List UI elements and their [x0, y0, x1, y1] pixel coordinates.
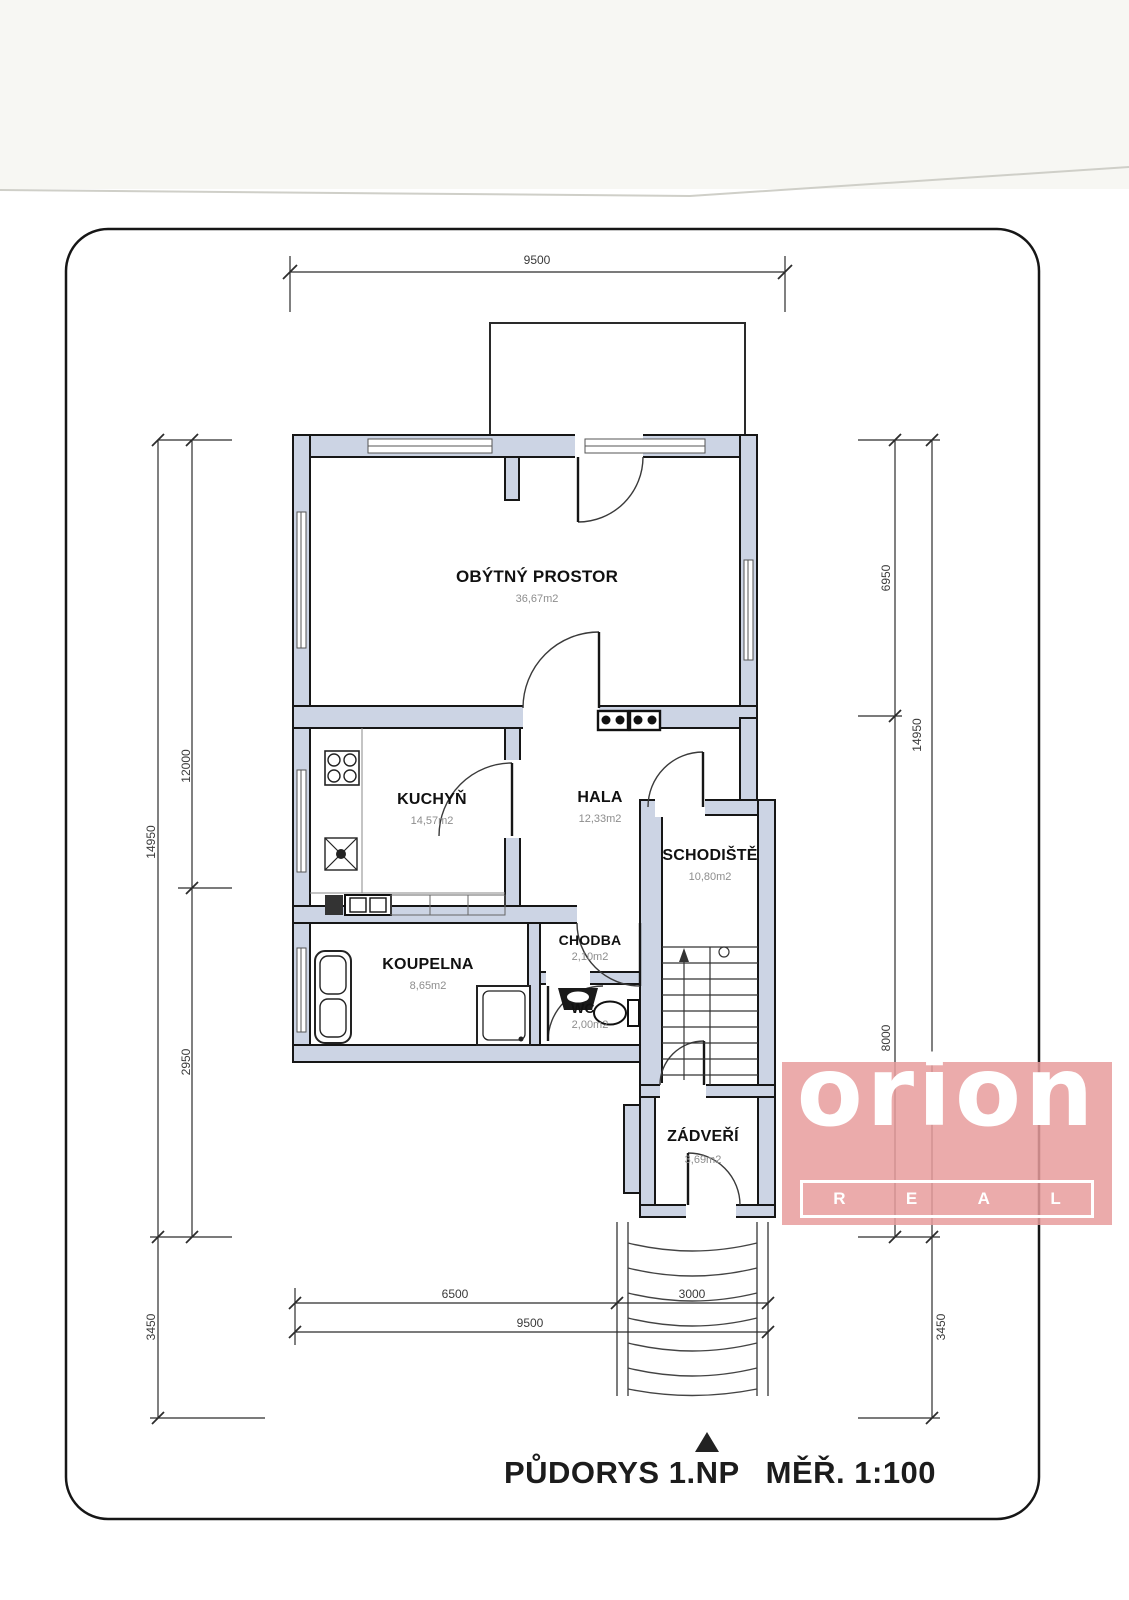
- real-letter-l: L: [1050, 1189, 1060, 1209]
- living-room-grill: [598, 711, 660, 730]
- scan-tear-edge: [0, 0, 1129, 196]
- dim-right-total: 14950: [910, 718, 924, 751]
- real-letter-e: E: [906, 1189, 917, 1209]
- room-area-koupelna: 8,65m2: [410, 980, 447, 992]
- dim-right-offset: 3450: [934, 1314, 948, 1341]
- room-area-obytny-prostor: 36,67m2: [516, 593, 559, 605]
- real-letter-a: A: [978, 1189, 990, 1209]
- room-label-obytny-prostor: OBÝTNÝ PROSTOR: [456, 567, 618, 587]
- real-letter-r: R: [833, 1189, 845, 1209]
- orion-watermark: orion R E A L: [782, 1062, 1112, 1225]
- room-label-wc: WC: [571, 1000, 595, 1016]
- room-area-kuchyn: 14,57m2: [411, 815, 454, 827]
- orion-real-box: R E A L: [800, 1180, 1094, 1218]
- room-area-schodiste: 10,80m2: [689, 871, 732, 883]
- dim-bottom-right: 3000: [679, 1287, 706, 1301]
- room-area-hala: 12,33m2: [579, 813, 622, 825]
- room-label-koupelna: KOUPELNA: [382, 956, 473, 974]
- dim-bottom-total: 9500: [517, 1316, 544, 1330]
- dim-top-width: 9500: [524, 253, 551, 267]
- room-label-kuchyn: KUCHYŇ: [397, 791, 467, 809]
- dim-left-offset: 3450: [144, 1314, 158, 1341]
- room-area-chodba: 2,10m2: [572, 951, 609, 963]
- plan-title: PŮDORYS 1.NPMĚŘ. 1:100: [500, 1455, 940, 1491]
- plan-scale-text: MĚŘ. 1:100: [766, 1455, 936, 1490]
- scanned-floor-plan-page: { "drawing": { "title": "PŮDORYS 1.NP", …: [0, 0, 1129, 1600]
- dim-left-upper: 12000: [179, 749, 193, 782]
- dim-left-lower: 2950: [179, 1049, 193, 1076]
- room-area-zadveri: 3,69m2: [685, 1154, 722, 1166]
- floor-plan-svg: [0, 0, 1129, 1600]
- plan-title-text: PŮDORYS 1.NP: [504, 1455, 740, 1490]
- room-label-zadveri: ZÁDVEŘÍ: [667, 1128, 739, 1146]
- room-label-schodiste: SCHODIŠTĚ: [662, 847, 757, 865]
- room-area-wc: 2,00m2: [572, 1019, 609, 1031]
- dim-left-total: 14950: [144, 825, 158, 858]
- room-label-hala: HALA: [577, 789, 622, 807]
- room-label-chodba: CHODBA: [559, 932, 622, 948]
- dim-bottom-left: 6500: [442, 1287, 469, 1301]
- dim-right-upper: 6950: [879, 565, 893, 592]
- orion-brand-text: orion: [782, 1036, 1112, 1148]
- terrace-outline: [490, 323, 745, 441]
